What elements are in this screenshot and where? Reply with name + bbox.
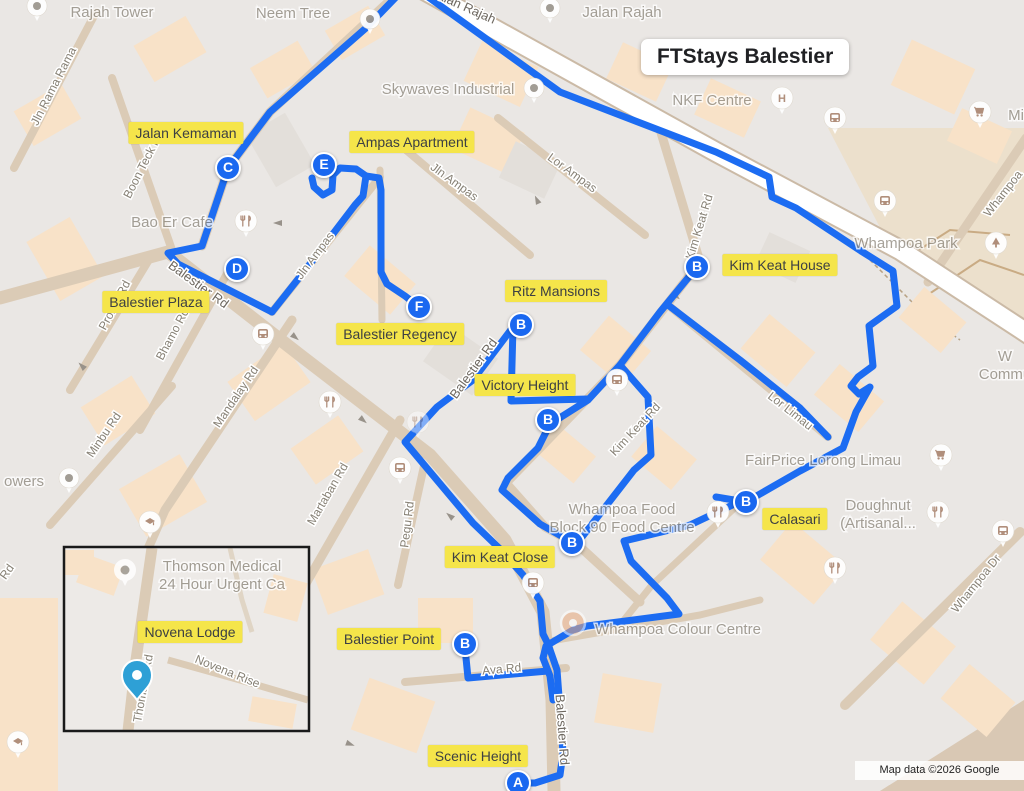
poi-label: Mi xyxy=(1008,107,1024,124)
route-marker-d[interactable]: D xyxy=(224,256,250,282)
poi-label: Bao Er Cafe xyxy=(131,214,213,231)
route-marker-b[interactable]: B xyxy=(733,489,759,515)
route-marker-e[interactable]: E xyxy=(311,152,337,178)
route-marker-b[interactable]: B xyxy=(684,254,710,280)
property-label-novena-lodge: Novena Lodge xyxy=(137,621,242,643)
map-attribution: Map data ©2026 Google xyxy=(855,761,1024,780)
property-label-jalan-kemaman: Jalan Kemaman xyxy=(128,122,243,144)
property-label-balestier-regency: Balestier Regency xyxy=(336,323,464,345)
property-label-kim-keat-house: Kim Keat House xyxy=(722,254,837,276)
poi-label: Whampoa Park xyxy=(854,235,958,252)
route-marker-c[interactable]: C xyxy=(215,155,241,181)
colour-pin-icon[interactable] xyxy=(561,611,585,635)
route-marker-f[interactable]: F xyxy=(406,294,432,320)
property-label-kim-keat-close: Kim Keat Close xyxy=(445,546,555,568)
route-marker-b[interactable]: B xyxy=(508,312,534,338)
building xyxy=(594,673,662,733)
route-marker-b[interactable]: B xyxy=(535,407,561,433)
property-label-victory-height: Victory Height xyxy=(475,374,576,396)
property-label-scenic-height: Scenic Height xyxy=(428,745,528,767)
poi-label: 24 Hour Urgent Ca xyxy=(159,576,286,593)
poi-label: FairPrice Lorong Limau xyxy=(745,452,901,469)
property-label-calasari: Calasari xyxy=(762,508,827,530)
poi-label: Doughnut xyxy=(845,497,911,514)
poi-label: W xyxy=(998,348,1013,365)
poi-label: NKF Centre xyxy=(672,92,751,109)
poi-label: Whampoa Colour Centre xyxy=(595,621,761,638)
svg-text:H: H xyxy=(778,93,786,105)
poi-label: Neem Tree xyxy=(256,5,330,22)
building xyxy=(0,598,58,791)
route-marker-a[interactable]: A xyxy=(505,770,531,791)
poi-label: Thomson Medical xyxy=(163,558,281,575)
route-marker-b[interactable]: B xyxy=(559,530,585,556)
page-title: FTStays Balestier xyxy=(641,39,849,75)
property-label-ampas-apartment: Ampas Apartment xyxy=(349,131,474,153)
property-label-balestier-plaza: Balestier Plaza xyxy=(102,291,209,313)
poi-label: owers xyxy=(4,473,44,490)
poi-label: Whampoa Food xyxy=(569,501,676,518)
property-label-balestier-point: Balestier Point xyxy=(337,628,441,650)
poi-label: (Artisanal... xyxy=(840,515,916,532)
poi-label: Skywaves Industrial xyxy=(382,81,515,98)
poi-label: Rajah Tower xyxy=(70,4,153,21)
poi-label: Commu xyxy=(979,366,1024,383)
map-canvas[interactable]: HJalan RajahJln Rama RamaBoon Teck RdBal… xyxy=(0,0,1024,791)
poi-label: Jalan Rajah xyxy=(582,4,661,21)
property-label-ritz-mansions: Ritz Mansions xyxy=(505,280,607,302)
route-marker-b[interactable]: B xyxy=(452,631,478,657)
